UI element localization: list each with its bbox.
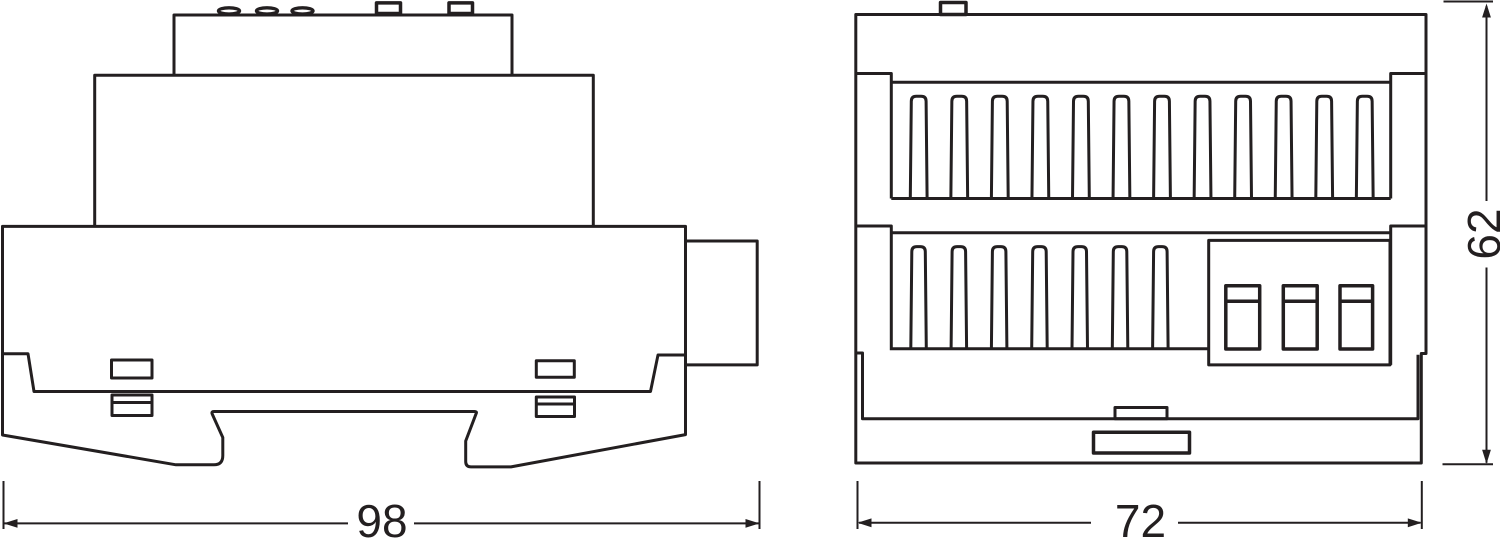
svg-text:72: 72 [1115, 495, 1166, 538]
svg-text:62: 62 [1458, 208, 1500, 259]
svg-text:98: 98 [356, 495, 407, 538]
